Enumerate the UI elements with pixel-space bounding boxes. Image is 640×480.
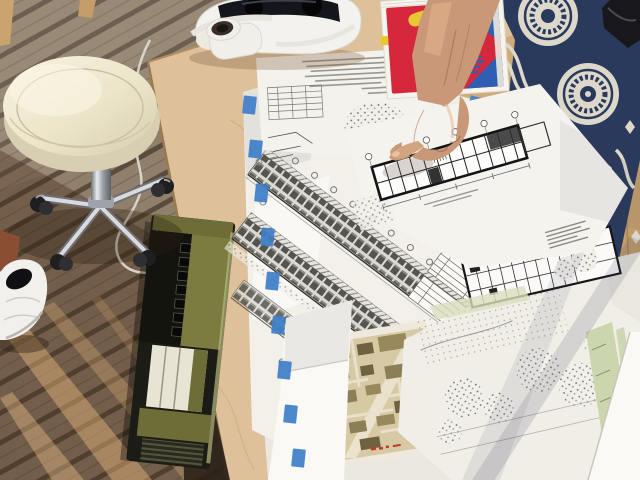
photo-scene bbox=[0, 0, 640, 480]
